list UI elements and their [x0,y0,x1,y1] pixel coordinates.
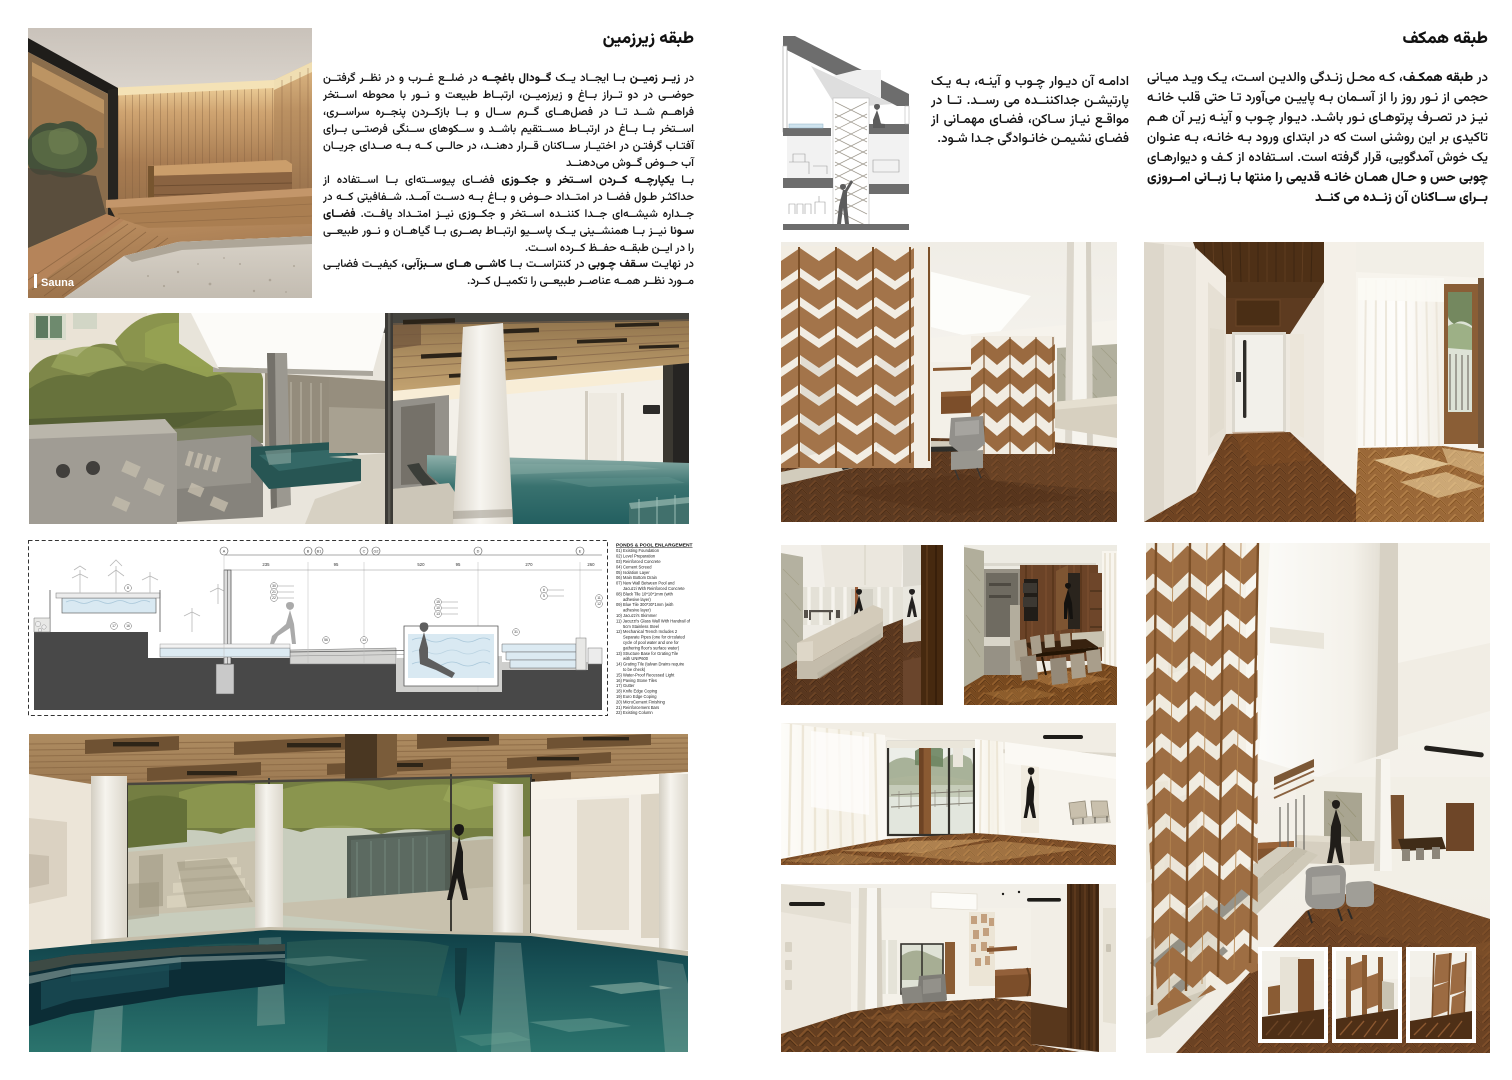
svg-text:11) Jacuzzi's Glass Wall With: 11) Jacuzzi's Glass Wall With Handrail o… [616,618,691,623]
svg-text:16: 16 [126,624,130,628]
svg-text:20) MicroCement Finishing: 20) MicroCement Finishing [616,699,666,704]
svg-text:11: 11 [597,596,601,600]
svg-text:B1: B1 [317,550,322,554]
svg-text:17: 17 [112,624,116,628]
svg-text:260: 260 [587,562,595,567]
svg-text:56: 56 [324,638,328,642]
svg-text:A: A [223,550,226,554]
svg-text:22: 22 [272,596,276,600]
svg-text:adhesive layer): adhesive layer) [623,608,651,613]
svg-text:12: 12 [597,602,601,606]
svg-text:to be check): to be check) [623,667,646,672]
svg-text:31: 31 [514,630,518,634]
svg-text:C: C [363,550,366,554]
svg-text:30: 30 [272,584,276,588]
svg-text:8: 8 [127,586,129,590]
svg-text:03) Reinforced Concrete: 03) Reinforced Concrete [616,559,661,564]
svg-text:09) Blue Tile 300*30*1mm (with: 09) Blue Tile 300*30*1mm (with [616,602,674,607]
svg-text:12) Mechanical Trench Includes: 12) Mechanical Trench Includes 2 [616,629,678,634]
svg-text:270: 270 [525,562,533,567]
svg-text:G2: G2 [373,550,378,554]
svg-text:01) Existing Foundation: 01) Existing Foundation [616,548,660,553]
svg-text:17) Gutter: 17) Gutter [616,683,635,688]
svg-text:04) Cement Screed: 04) Cement Screed [616,564,652,569]
svg-text:07) New Wall Between Pool and: 07) New Wall Between Pool and [616,581,675,586]
svg-text:95: 95 [456,562,461,567]
svg-text:B: B [307,550,310,554]
svg-text:21: 21 [272,590,276,594]
svg-text:14: 14 [362,638,366,642]
svg-text:5: 5 [543,594,545,598]
svg-text:21) Reinforcement Bars: 21) Reinforcement Bars [616,705,659,710]
svg-text:22) Existing Column: 22) Existing Column [616,710,653,715]
svg-text:14) Grating Tile (talvan Drain: 14) Grating Tile (talvan Drains require [616,662,685,667]
svg-text:6: 6 [543,588,545,592]
svg-text:08) Black Tile 10*10*1mm (with: 08) Black Tile 10*10*1mm (with [616,591,674,596]
svg-text:18) Knife Edge Coping: 18) Knife Edge Coping [616,689,658,694]
svg-text:gathering floor's surface wate: gathering floor's surface water) [623,645,680,650]
svg-text:02) Level Preparation: 02) Level Preparation [616,554,656,559]
svg-text:520: 520 [417,562,425,567]
svg-text:06) Main Bottom Drain: 06) Main Bottom Drain [616,575,658,580]
svg-text:19) Euro Edge Coping: 19) Euro Edge Coping [616,694,657,699]
svg-text:10) Jacuzzi's Skimmer: 10) Jacuzzi's Skimmer [616,613,657,618]
svg-text:235: 235 [262,562,270,567]
svg-text:13) Structure Base for Grating: 13) Structure Base for Grating Tile [616,651,679,656]
svg-text:cycle of pool water and one fo: cycle of pool water and one for [623,640,679,645]
svg-text:with UNIP600: with UNIP600 [623,656,649,661]
svg-text:95: 95 [334,562,339,567]
svg-text:D: D [477,550,480,554]
svg-text:16) Paving Stone Tiles: 16) Paving Stone Tiles [616,678,657,683]
svg-text:adhesive layer): adhesive layer) [623,597,651,602]
svg-text:Sauna: Sauna [41,277,75,289]
svg-text:5cm Stainless Steel: 5cm Stainless Steel [623,624,659,629]
svg-text:15: 15 [436,600,440,604]
svg-text:E: E [579,550,582,554]
svg-text:05) Isolation Layer: 05) Isolation Layer [616,570,650,575]
svg-text:15) Water-Proof Recessed Light: 15) Water-Proof Recessed Light [616,672,675,677]
svg-text:13: 13 [436,612,440,616]
svg-text:Separate Pipes (one for circul: Separate Pipes (one for circulated [623,635,686,640]
svg-text:Jacuzzi With Reinforced Concre: Jacuzzi With Reinforced Concrete [623,586,685,591]
svg-text:10: 10 [436,606,440,610]
